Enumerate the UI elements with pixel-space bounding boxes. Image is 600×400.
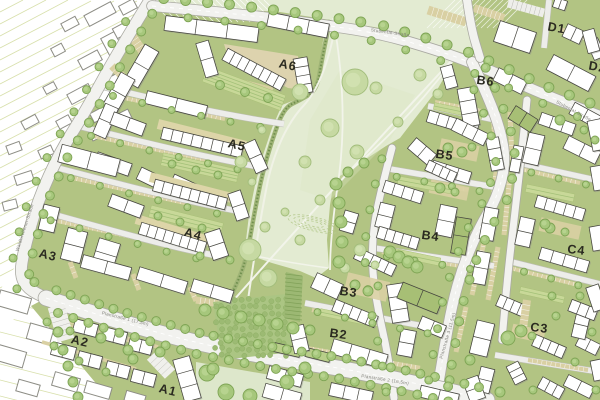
svg-text:B5: B5	[435, 147, 455, 163]
svg-text:C4: C4	[567, 242, 586, 258]
svg-text:C3: C3	[530, 320, 549, 336]
svg-text:B4: B4	[421, 228, 441, 244]
svg-text:B6: B6	[476, 73, 496, 89]
svg-text:B3: B3	[339, 284, 359, 300]
svg-text:B2: B2	[329, 326, 349, 342]
